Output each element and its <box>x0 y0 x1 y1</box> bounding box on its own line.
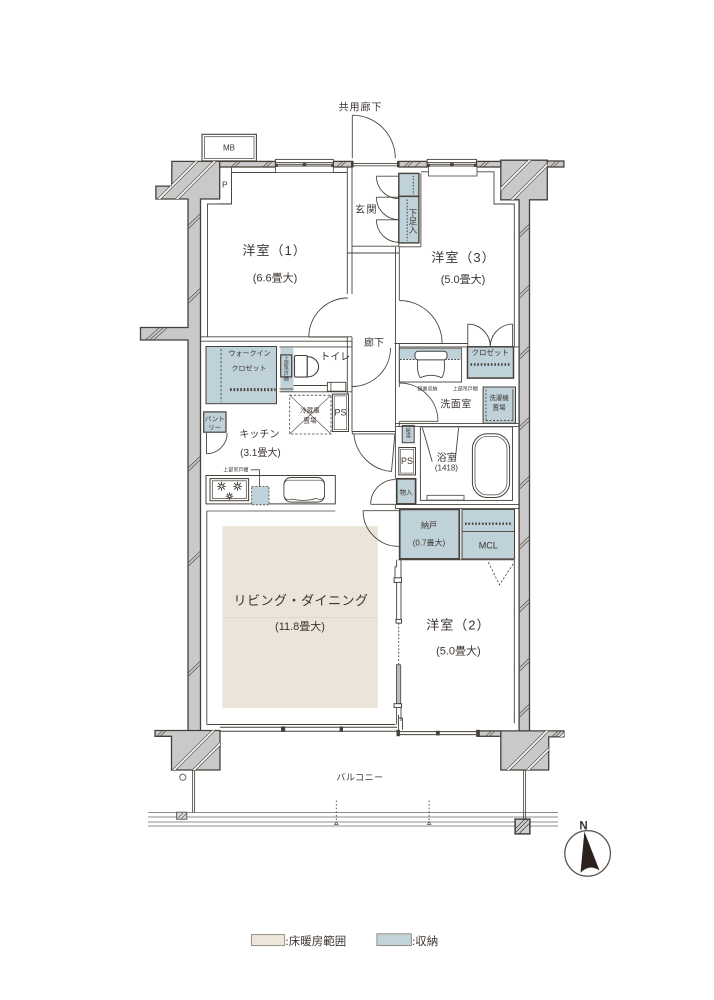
svg-text:入: 入 <box>409 225 418 235</box>
svg-text:浴室: 浴室 <box>437 451 457 464</box>
svg-text:洗濯機: 洗濯機 <box>489 393 509 402</box>
svg-text:上部吊戸棚: 上部吊戸棚 <box>223 467 248 474</box>
svg-text:パント: パント <box>205 415 225 423</box>
svg-text:(11.8畳大): (11.8畳大) <box>275 619 325 633</box>
svg-text:トイレ: トイレ <box>320 352 350 363</box>
svg-text:ウォークイン: ウォークイン <box>229 350 271 358</box>
svg-text:(3.1畳大): (3.1畳大) <box>240 446 281 459</box>
svg-text:棚: 棚 <box>284 376 289 383</box>
svg-text:物入: 物入 <box>400 488 414 497</box>
svg-text:キッチン: キッチン <box>239 429 279 441</box>
svg-text:洋室（1）: 洋室（1） <box>242 243 306 258</box>
svg-text:洋室（2）: 洋室（2） <box>426 618 490 633</box>
svg-text:(0.7畳大): (0.7畳大) <box>413 537 446 547</box>
svg-text:(6.6畳大): (6.6畳大) <box>253 271 298 285</box>
svg-text::収納: :収納 <box>412 935 438 948</box>
svg-text:(5.0畳大): (5.0畳大) <box>441 272 486 286</box>
svg-text:MCL: MCL <box>479 541 498 551</box>
svg-text:PS: PS <box>334 408 346 418</box>
svg-text:洗面室: 洗面室 <box>440 398 472 411</box>
svg-text:クロゼット: クロゼット <box>472 347 510 357</box>
svg-text:(5.0畳大): (5.0畳大) <box>436 644 481 658</box>
svg-text:置場: 置場 <box>304 416 318 425</box>
svg-text:湯: 湯 <box>406 433 411 440</box>
svg-text:冷蔵庫: 冷蔵庫 <box>300 406 320 415</box>
svg-text:鏡裏収納: 鏡裏収納 <box>418 386 438 393</box>
svg-text:N: N <box>579 821 587 833</box>
svg-text:MB: MB <box>223 144 235 153</box>
svg-text:P: P <box>222 180 228 190</box>
svg-text:バルコニー: バルコニー <box>336 773 383 783</box>
svg-text:リー: リー <box>208 425 221 432</box>
svg-text:PS: PS <box>401 456 413 466</box>
svg-text::床暖房範囲: :床暖房範囲 <box>286 934 347 948</box>
svg-text:上部吊戸棚: 上部吊戸棚 <box>453 386 478 393</box>
svg-text:廊下: 廊下 <box>364 336 384 349</box>
svg-text:(1418): (1418) <box>435 464 458 473</box>
svg-text:リビング・ダイニング: リビング・ダイニング <box>233 593 368 608</box>
svg-text:共用廊下: 共用廊下 <box>339 101 383 114</box>
svg-text:玄関: 玄関 <box>355 203 378 216</box>
svg-text:洋室（3）: 洋室（3） <box>431 250 495 265</box>
svg-text:クロゼット: クロゼット <box>232 364 267 373</box>
svg-text:納戸: 納戸 <box>421 520 437 530</box>
svg-text:置場: 置場 <box>493 403 507 412</box>
